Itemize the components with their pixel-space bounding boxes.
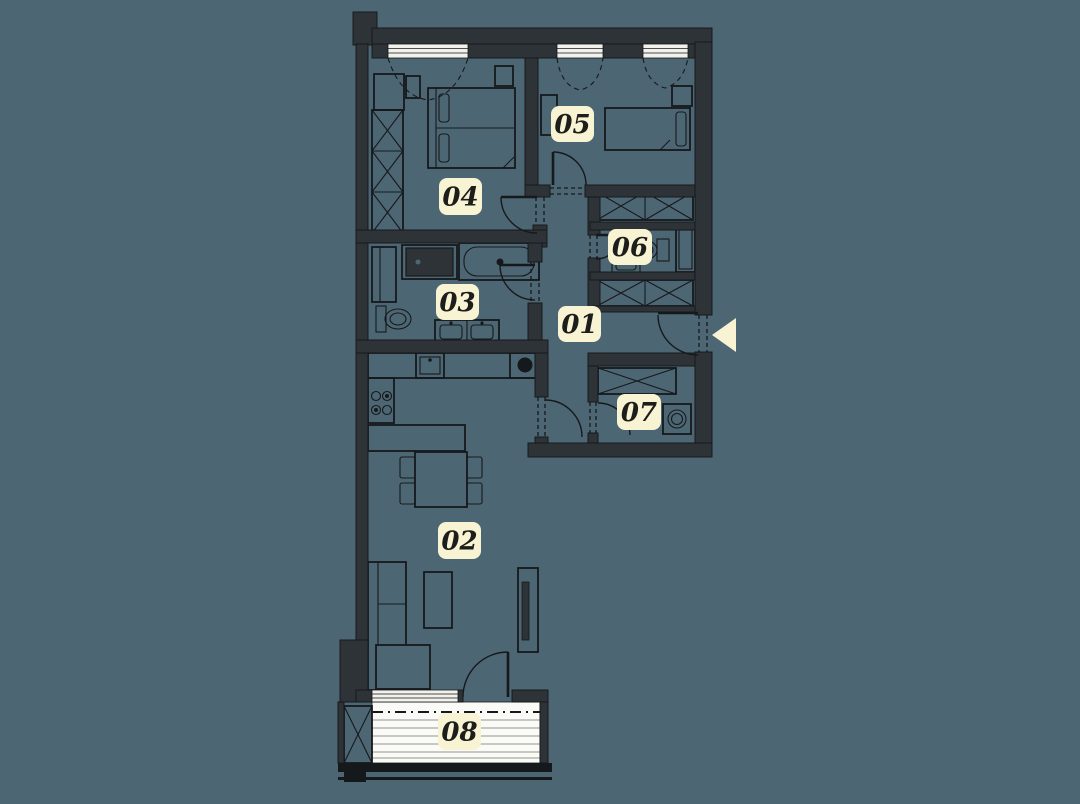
shelf-icon (598, 368, 676, 394)
svg-text:05: 05 (554, 110, 590, 140)
floor-plan-canvas: 01 02 03 04 05 06 07 08 (0, 0, 1080, 804)
chair-icon (467, 457, 482, 478)
room-label-01: 01 (558, 306, 601, 342)
room-label-03: 03 (436, 284, 479, 320)
svg-text:06: 06 (612, 233, 648, 263)
window-icon (372, 690, 458, 702)
chair-icon (400, 483, 415, 504)
svg-text:01: 01 (561, 310, 597, 340)
chaise-icon (376, 645, 430, 689)
balcony-railing (338, 777, 552, 780)
kitchen-counter-icon (368, 353, 540, 378)
nightstand-icon (672, 86, 692, 106)
chair-icon (400, 457, 415, 478)
svg-text:07: 07 (621, 398, 657, 428)
balcony-railing-post (344, 772, 366, 782)
single-bed-icon (605, 108, 690, 150)
washing-machine-icon (663, 404, 691, 434)
nightstand-icon (495, 66, 513, 86)
room-label-04: 04 (439, 178, 482, 215)
dining-table-icon (400, 452, 482, 507)
entrance-arrow-icon (712, 318, 736, 352)
floor-plan-svg: 01 02 03 04 05 06 07 08 (0, 0, 1080, 804)
window-icon (388, 44, 468, 58)
cabinet-icon (676, 227, 695, 272)
dresser-icon (374, 74, 404, 110)
cabinet-icon (372, 247, 396, 302)
svg-text:04: 04 (442, 183, 478, 213)
sofa-icon (368, 562, 430, 690)
window-swing-arc (643, 58, 688, 88)
room-label-06: 06 (608, 229, 652, 265)
hall-closet-icon (597, 280, 693, 306)
chair-icon (467, 483, 482, 504)
window-icon (557, 44, 603, 58)
balcony-storage-icon (344, 706, 372, 763)
window-swing-arc (557, 58, 603, 90)
tv-sideboard-icon (518, 568, 538, 652)
stove-icon (368, 378, 394, 423)
kitchen-furniture (368, 353, 540, 507)
room-label-05: 05 (551, 106, 594, 142)
svg-text:08: 08 (441, 718, 477, 748)
svg-text:02: 02 (441, 527, 477, 557)
room-label-08: 08 (438, 713, 481, 750)
shower-icon (402, 245, 457, 279)
balcony-side-wall (540, 702, 548, 763)
bathtub-icon (459, 243, 539, 280)
coffee-table-icon (424, 572, 452, 628)
room-label-07: 07 (617, 394, 661, 430)
kitchen-sink-icon (416, 353, 444, 378)
balcony-side-wall (338, 702, 344, 763)
window-icon (643, 44, 688, 58)
svg-text:03: 03 (439, 288, 475, 318)
toilet-icon (376, 306, 411, 332)
room-label-02: 02 (438, 522, 481, 559)
double-bed-icon (428, 88, 515, 168)
wardrobe-icon (372, 110, 403, 233)
living-room-furniture (368, 562, 538, 690)
kitchen-island-icon (368, 425, 465, 451)
balcony-railing (338, 763, 552, 772)
